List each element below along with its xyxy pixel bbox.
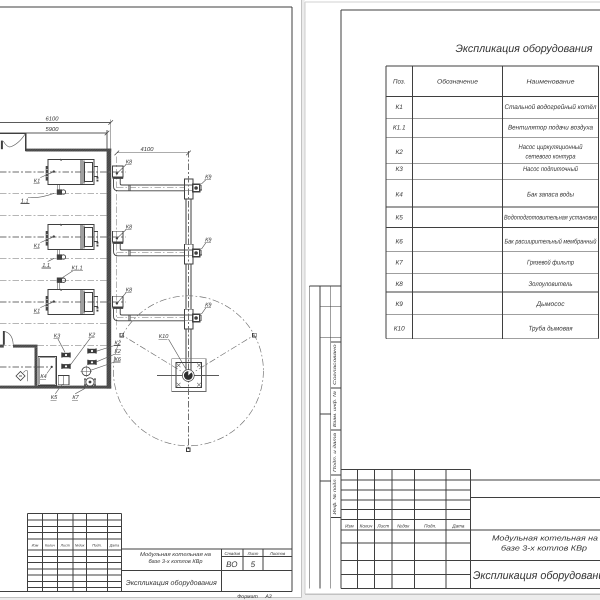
svg-text:Наименование: Наименование — [527, 78, 576, 85]
svg-text:Дата: Дата — [451, 523, 465, 528]
svg-text:Стадия: Стадия — [224, 551, 240, 556]
svg-text:Бак расширительный мембранный: Бак расширительный мембранный — [505, 239, 597, 246]
svg-text:Грязевой фильтр: Грязевой фильтр — [527, 259, 574, 266]
svg-text:Дата: Дата — [109, 544, 119, 548]
svg-text:Модульная котельная на: Модульная котельная на — [492, 533, 598, 542]
svg-text:К1: К1 — [396, 104, 404, 111]
svg-text:А3: А3 — [264, 594, 271, 600]
svg-text:Модульная котельная на: Модульная котельная на — [140, 552, 211, 558]
svg-text:Лист: Лист — [376, 523, 389, 528]
svg-text:№док: №док — [75, 544, 85, 548]
svg-text:Стальной водогрейный котёл: Стальной водогрейный котёл — [505, 104, 597, 111]
svg-text:5900: 5900 — [46, 126, 60, 133]
svg-text:Формат: Формат — [237, 594, 258, 600]
svg-text:Бак запаса воды: Бак запаса воды — [527, 192, 574, 199]
svg-text:Поз.: Поз. — [393, 78, 405, 85]
svg-text:Инф. № подл.: Инф. № подл. — [332, 478, 337, 515]
svg-text:Согласовано: Согласовано — [332, 344, 337, 385]
svg-text:Изм: Изм — [345, 523, 354, 528]
svg-text:базе 3-х котлов КВр: базе 3-х котлов КВр — [149, 559, 203, 565]
svg-text:Дымосос: Дымосос — [536, 301, 566, 308]
svg-text:Водоподготовительная установка: Водоподготовительная установка — [504, 214, 597, 221]
svg-text:Изм: Изм — [32, 544, 39, 548]
svg-text:5: 5 — [251, 560, 256, 569]
svg-text:Подп.: Подп. — [424, 523, 436, 528]
svg-text:Обозначение: Обозначение — [437, 78, 479, 85]
svg-text:К8: К8 — [396, 281, 404, 288]
svg-text:Колич: Колич — [45, 544, 55, 548]
svg-text:Экспликация оборудования: Экспликация оборудования — [456, 43, 593, 55]
svg-text:сетевого контура: сетевого контура — [526, 154, 576, 161]
svg-text:базе 3-х котлов КВр: базе 3-х котлов КВр — [501, 543, 587, 552]
svg-text:К4: К4 — [396, 192, 404, 199]
svg-text:К10: К10 — [394, 326, 405, 333]
svg-text:Труба дымовая: Труба дымовая — [529, 326, 573, 333]
svg-text:К7: К7 — [396, 259, 404, 266]
svg-text:Экспликация оборудования: Экспликация оборудования — [473, 570, 600, 582]
svg-text:Вентилятор подачи воздуха: Вентилятор подачи воздуха — [508, 125, 593, 132]
svg-text:Экспликация оборудования: Экспликация оборудования — [126, 579, 217, 587]
svg-text:Подп.: Подп. — [92, 544, 102, 548]
svg-text:Насос подпиточный: Насос подпиточный — [523, 166, 578, 173]
svg-text:Лист: Лист — [247, 551, 259, 556]
svg-text:К3: К3 — [396, 166, 404, 173]
svg-text:Золоуловитель: Золоуловитель — [529, 281, 573, 288]
svg-text:Подп. и дата: Подп. и дата — [332, 432, 337, 472]
svg-text:К2: К2 — [396, 149, 404, 156]
svg-text:К1.1: К1.1 — [393, 125, 406, 132]
svg-text:Взам. инф. №: Взам. инф. № — [332, 391, 337, 427]
svg-text:К5: К5 — [396, 214, 404, 221]
svg-text:Колич: Колич — [360, 523, 373, 528]
svg-text:6100: 6100 — [46, 116, 60, 123]
svg-text:Лист: Лист — [60, 544, 70, 548]
svg-text:Листов: Листов — [269, 551, 286, 556]
svg-text:К9: К9 — [396, 301, 404, 308]
svg-text:№док: №док — [397, 523, 410, 528]
svg-text:К6: К6 — [396, 239, 404, 246]
svg-text:Насос циркуляционный: Насос циркуляционный — [519, 144, 583, 151]
svg-text:ВО: ВО — [226, 560, 237, 569]
svg-text:4100: 4100 — [141, 146, 155, 153]
